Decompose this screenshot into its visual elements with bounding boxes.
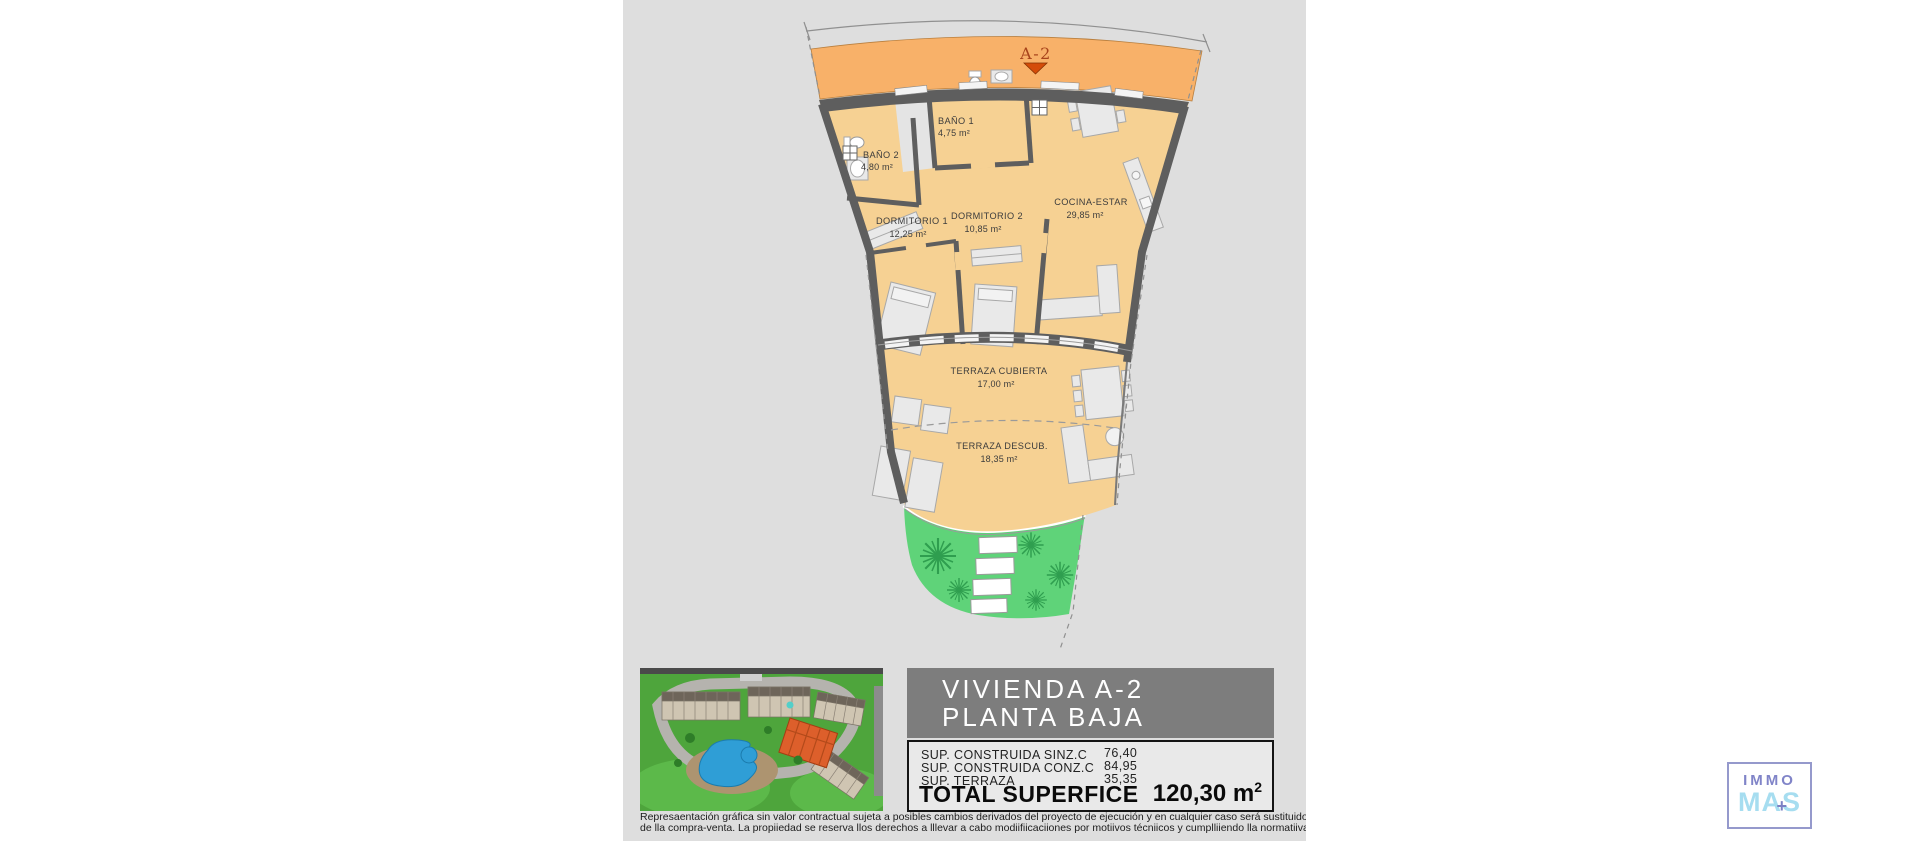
room-label-dormitorio2: DORMITORIO 2 <box>951 211 1023 221</box>
room-label-banio1: BAÑO 1 <box>938 116 974 126</box>
total-surface-value: 120,30 m2 <box>1153 779 1262 808</box>
total-surface-label: TOTAL SUPERFICE <box>919 781 1139 808</box>
room-label-cocina: COCINA-ESTAR <box>1054 197 1128 207</box>
total-surface-sup: 2 <box>1254 779 1262 795</box>
brochure-page: A-2 <box>623 0 1306 841</box>
unit-marker-label: A-2 <box>1019 44 1052 63</box>
room-label-banio2: BAÑO 2 <box>863 150 899 160</box>
logo-mas-text: MAS+ <box>1738 789 1801 816</box>
room-area-dormitorio1: 12,25 m² <box>889 229 926 239</box>
room-area-banio1: 4,75 m² <box>938 128 970 138</box>
room-area-dormitorio2: 10,85 m² <box>964 224 1001 234</box>
logo-plus-icon: + <box>1776 793 1788 820</box>
room-area-terraza-descub: 18,35 m² <box>980 454 1017 464</box>
disclaimer-line1: Represaentación gráfica sin valor contra… <box>640 812 1306 823</box>
room-area-terraza-cubierta: 17,00 m² <box>977 379 1014 389</box>
disclaimer-text: Represaentación gráfica sin valor contra… <box>640 812 1306 833</box>
disclaimer-line2: de lla compra-venta. La propiiedad se re… <box>640 823 1306 834</box>
total-surface-row: TOTAL SUPERFICE 120,30 m2 <box>909 780 1272 808</box>
surface-value: 76,40 <box>1104 746 1137 760</box>
site-teal-dot <box>787 702 794 709</box>
room-label-terraza-cubierta: TERRAZA CUBIERTA <box>951 366 1048 376</box>
room-area-banio2: 4,80 m² <box>861 162 893 172</box>
room-label-dormitorio1: DORMITORIO 1 <box>876 216 948 226</box>
surface-row: SUP. CONSTRUIDA SINZ.C 76,40 <box>921 748 1261 761</box>
surface-label: SUP. CONSTRUIDA CONZ.C <box>921 761 1094 775</box>
unit-info-header: VIVIENDA A-2 PLANTA BAJA <box>907 668 1274 738</box>
surface-row: SUP. CONSTRUIDA CONZ.C 84,95 <box>921 761 1261 774</box>
room-label-terraza-descub: TERRAZA DESCUB. <box>956 441 1048 451</box>
unit-info-panel: VIVIENDA A-2 PLANTA BAJA SUP. CONSTRUIDA… <box>907 668 1274 812</box>
immo-mas-logo: IMMO MAS+ <box>1727 762 1812 829</box>
unit-title-line2: PLANTA BAJA <box>942 703 1274 731</box>
unit-info-body: SUP. CONSTRUIDA SINZ.C 76,40 SUP. CONSTR… <box>907 740 1274 812</box>
unit-title-line1: VIVIENDA A-2 <box>942 675 1274 703</box>
surface-value: 84,95 <box>1104 759 1137 773</box>
surface-label: SUP. CONSTRUIDA SINZ.C <box>921 748 1087 762</box>
site-plan-image <box>640 668 883 811</box>
room-area-cocina: 29,85 m² <box>1066 210 1103 220</box>
floor-plan: A-2 <box>623 0 1306 665</box>
